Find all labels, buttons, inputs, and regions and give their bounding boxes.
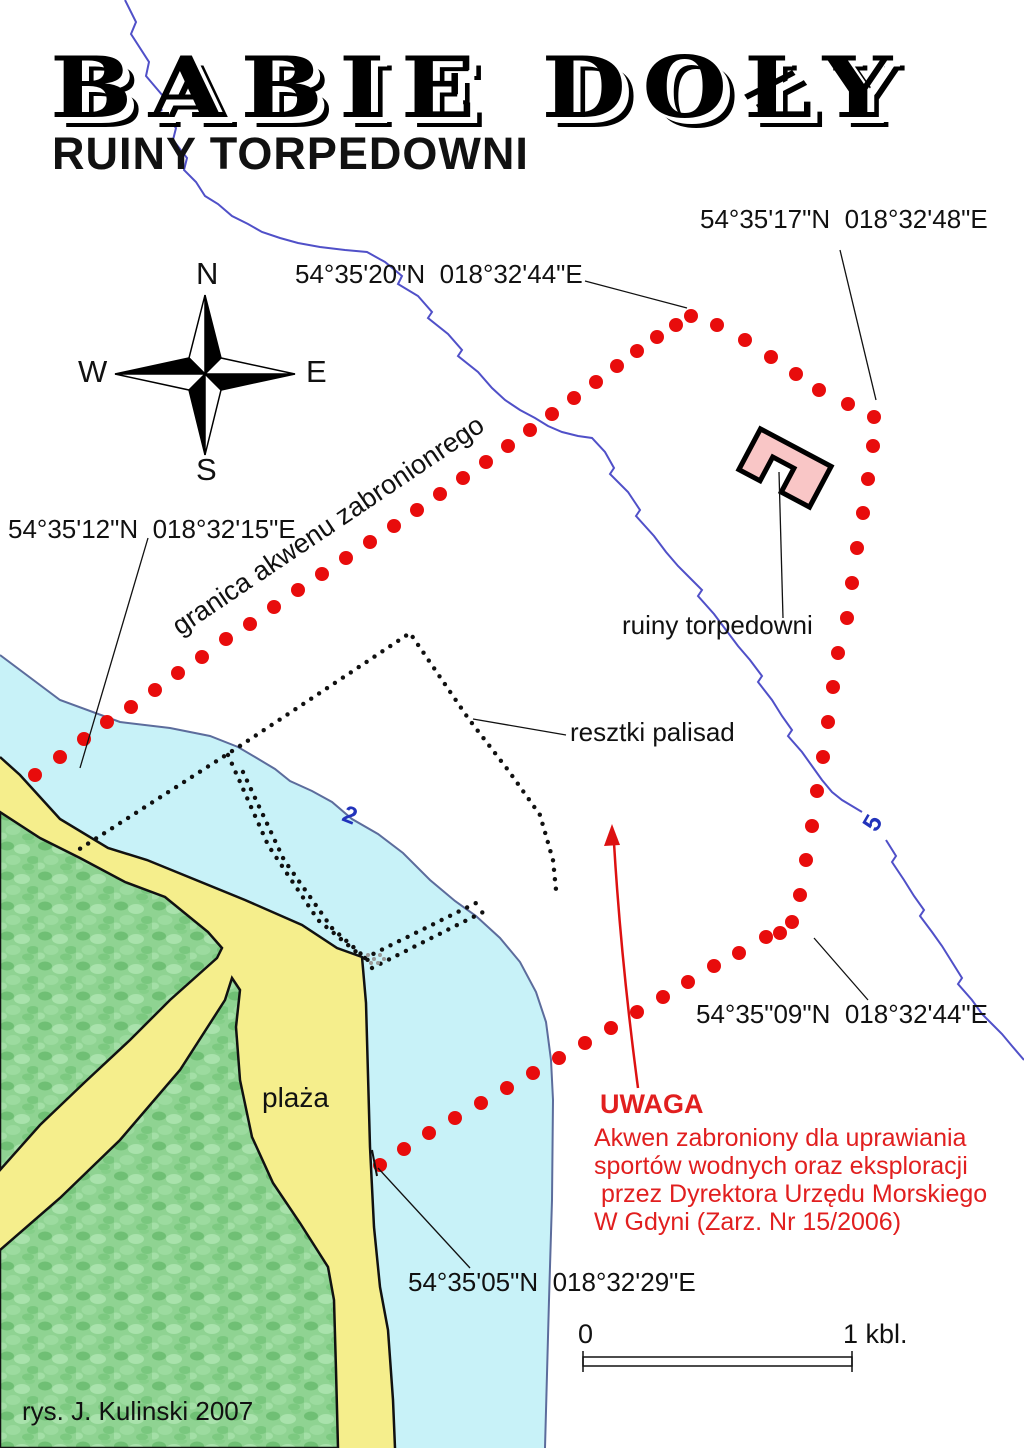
warning-line: przez Dyrektora Urzędu Morskiego xyxy=(594,1180,987,1209)
scale-start-label: 0 xyxy=(578,1320,593,1348)
palisade-label: resztki palisad xyxy=(570,719,735,746)
compass-east-label: E xyxy=(306,356,327,389)
author-credit: rys. J. Kulinski 2007 xyxy=(22,1398,253,1425)
compass-south-label: S xyxy=(196,454,217,487)
coord-left: 54°35'12"N 018°32'15"E xyxy=(8,516,296,543)
compass-north-label: N xyxy=(196,258,218,291)
beach-label: plaża xyxy=(262,1083,329,1112)
warning-line: W Gdyni (Zarz. Nr 15/2006) xyxy=(594,1208,901,1237)
warning-heading: UWAGA xyxy=(600,1090,704,1118)
direction-arrow xyxy=(604,824,638,1088)
compass-west-label: W xyxy=(78,356,107,389)
warning-line: sportów wodnych oraz eksploracji xyxy=(594,1152,968,1181)
leader-coord-right xyxy=(814,938,868,1000)
map-subtitle: RUINY TORPEDOWNI xyxy=(52,130,529,177)
map-title: BABIE DOŁY xyxy=(50,44,908,132)
scale-bar xyxy=(583,1351,852,1372)
leader-coord-top xyxy=(585,281,687,308)
ruins-building xyxy=(739,429,831,507)
ruins-label: ruiny torpedowni xyxy=(622,612,813,639)
warning-line: Akwen zabroniony dla uprawiania xyxy=(594,1124,966,1153)
map-page: BABIE DOŁY RUINY TORPEDOWNI 54°35'17"N 0… xyxy=(0,0,1024,1448)
scale-end-label: 1 kbl. xyxy=(843,1320,908,1348)
coord-top: 54°35'20"N 018°32'44"E xyxy=(295,261,583,288)
coord-right: 54°35"09"N 018°32'44"E xyxy=(696,1001,988,1028)
coord-top-right: 54°35'17"N 018°32'48"E xyxy=(700,206,988,233)
coord-bottom: 54°35'05"N 018°32'29"E xyxy=(408,1269,696,1296)
compass-rose-icon xyxy=(115,295,295,455)
leader-palisade xyxy=(473,719,566,735)
leader-coord-top-right xyxy=(840,250,876,400)
